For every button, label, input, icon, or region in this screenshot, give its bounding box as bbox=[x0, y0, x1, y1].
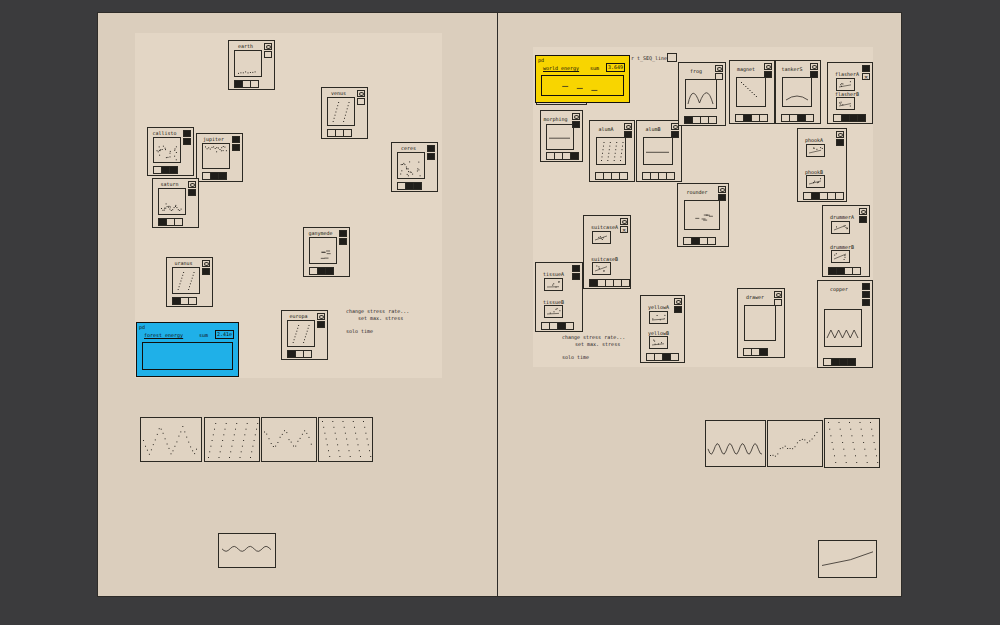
sum-label: sum bbox=[590, 65, 599, 71]
toggle-button[interactable] bbox=[572, 265, 580, 272]
energy-graph bbox=[142, 342, 233, 370]
radio-cell[interactable] bbox=[303, 350, 312, 358]
toggle-button[interactable] bbox=[427, 145, 435, 152]
radio-row bbox=[234, 80, 258, 88]
radio-cell[interactable] bbox=[847, 358, 856, 366]
sum-number-box[interactable]: 2.41e bbox=[215, 330, 234, 339]
graph-canvas bbox=[643, 137, 673, 165]
radio-cell[interactable] bbox=[565, 322, 574, 330]
radio-cell[interactable] bbox=[218, 172, 227, 180]
toggle-button[interactable]: ✕ bbox=[862, 73, 870, 80]
graph-canvas bbox=[782, 77, 812, 107]
radio-row bbox=[309, 267, 333, 275]
graph-canvas bbox=[684, 200, 720, 230]
toggle-button[interactable] bbox=[202, 268, 210, 275]
radio-row bbox=[397, 182, 421, 190]
seq-line-number-box[interactable] bbox=[667, 53, 677, 62]
bang-icon bbox=[673, 125, 678, 129]
module-drummer[interactable]: drummerAdrummerB bbox=[822, 205, 870, 277]
module-label: morphing bbox=[541, 116, 570, 122]
module-label: callisto bbox=[148, 130, 181, 136]
module-label: venus bbox=[322, 90, 355, 96]
module-callisto[interactable]: callisto bbox=[147, 127, 194, 176]
radio-row bbox=[541, 322, 573, 330]
bang-icon bbox=[720, 188, 725, 192]
graph-canvas bbox=[744, 305, 776, 341]
radio-row bbox=[684, 116, 716, 124]
radio-cell[interactable] bbox=[708, 116, 717, 124]
toggle-button[interactable] bbox=[764, 71, 772, 78]
toggle-button[interactable] bbox=[188, 189, 196, 196]
bang-icon bbox=[838, 133, 843, 137]
module-phook[interactable]: phookAphookB bbox=[797, 128, 847, 202]
module-morphing[interactable]: morphing bbox=[540, 110, 583, 162]
module-copper[interactable]: copper bbox=[817, 280, 873, 368]
sum-label: sum bbox=[199, 332, 208, 338]
graph-canvas bbox=[824, 309, 862, 347]
radio-cell[interactable] bbox=[666, 172, 675, 180]
graph-canvas bbox=[546, 124, 574, 150]
bang-icon bbox=[812, 65, 817, 69]
module-label: copper bbox=[818, 286, 860, 292]
radio-cell[interactable] bbox=[707, 237, 716, 245]
radio-cell[interactable] bbox=[621, 279, 630, 287]
module-ganymede[interactable]: ganymede bbox=[303, 227, 350, 277]
pd-tag: pd bbox=[139, 324, 145, 330]
module-label: saturn bbox=[153, 181, 186, 187]
toggle-button[interactable] bbox=[339, 238, 347, 245]
array-name-label: world_energy bbox=[543, 65, 579, 71]
module-drawer[interactable]: drawer bbox=[737, 288, 785, 358]
radio-row bbox=[743, 348, 767, 356]
energy-graph bbox=[541, 75, 624, 96]
toggle-button[interactable] bbox=[572, 273, 580, 280]
graph-canvas-b bbox=[544, 305, 563, 318]
bang-icon bbox=[190, 183, 195, 187]
toggle-button[interactable] bbox=[183, 138, 191, 145]
toggle-x-icon: ✕ bbox=[863, 74, 869, 79]
graph-canvas-b bbox=[649, 336, 668, 349]
array-display-arr-r4 bbox=[818, 540, 877, 578]
radio-row bbox=[781, 114, 813, 122]
toggle-button[interactable] bbox=[624, 131, 632, 138]
radio-row bbox=[546, 152, 578, 160]
graph-canvas-a bbox=[836, 78, 855, 91]
toggle-button[interactable] bbox=[317, 321, 325, 328]
graph-canvas-a bbox=[831, 221, 850, 234]
comment-set-max-right: set max. stress bbox=[575, 341, 620, 348]
array-display-arr-r3 bbox=[824, 418, 880, 468]
module-label: earth bbox=[229, 43, 262, 49]
toggle-button[interactable] bbox=[264, 51, 272, 58]
bang-icon bbox=[676, 300, 681, 304]
array-display-arr-r1 bbox=[705, 420, 766, 467]
graph-canvas-a bbox=[592, 231, 611, 244]
array-display-arr-r2 bbox=[767, 420, 823, 467]
energy-canvas-world[interactable]: pdworld_energysum3.649 bbox=[535, 55, 630, 103]
toggle-button[interactable] bbox=[339, 230, 347, 237]
graph-canvas bbox=[158, 188, 186, 215]
bang-icon bbox=[574, 115, 579, 119]
comment-solo-time-left: solo time bbox=[346, 328, 373, 335]
module-tankerS[interactable]: tankerS bbox=[775, 60, 821, 124]
module-rounder[interactable]: rounder bbox=[677, 183, 729, 247]
toggle-button[interactable] bbox=[427, 153, 435, 160]
module-sublabel-a: tissueA bbox=[543, 271, 564, 277]
bang-button[interactable] bbox=[264, 43, 272, 50]
module-label: alumB bbox=[637, 126, 669, 132]
module-ceres[interactable]: ceres bbox=[391, 142, 438, 192]
array-name-label: forest_energy bbox=[144, 332, 183, 338]
bang-button[interactable] bbox=[810, 63, 818, 70]
module-label: tankerS bbox=[776, 66, 808, 72]
radio-cell[interactable] bbox=[857, 114, 866, 122]
radio-row bbox=[642, 172, 674, 180]
module-label: magnet bbox=[730, 66, 762, 72]
bang-button[interactable] bbox=[357, 90, 365, 97]
module-jupiter[interactable]: jupiter bbox=[196, 133, 243, 182]
module-sublabel-a: phookA bbox=[805, 137, 823, 143]
graph-canvas-b bbox=[831, 250, 850, 263]
bang-icon bbox=[266, 45, 271, 49]
radio-row bbox=[823, 358, 855, 366]
module-sublabel-a: drummerA bbox=[830, 214, 854, 220]
bang-button[interactable] bbox=[715, 65, 723, 72]
graph-canvas bbox=[596, 137, 626, 165]
module-flasher[interactable]: flasherAflasherB✕ bbox=[827, 62, 873, 124]
module-saturn[interactable]: saturn bbox=[152, 178, 199, 228]
pd-tag: pd bbox=[538, 57, 544, 63]
module-label: ceres bbox=[392, 145, 425, 151]
radio-cell[interactable] bbox=[759, 114, 768, 122]
module-label: rounder bbox=[678, 189, 716, 195]
module-alumA[interactable]: alumA bbox=[589, 120, 635, 182]
array-display-arr-l3 bbox=[261, 417, 317, 462]
toggle-button[interactable] bbox=[674, 306, 682, 313]
radio-row bbox=[646, 353, 678, 361]
radio-row bbox=[803, 192, 843, 200]
graph-canvas bbox=[202, 143, 230, 169]
graph-canvas bbox=[685, 79, 717, 109]
graph-canvas bbox=[309, 237, 337, 264]
graph-canvas bbox=[234, 50, 262, 77]
toggle-button[interactable] bbox=[357, 98, 365, 105]
module-tissue[interactable]: tissueAtissueB bbox=[535, 262, 583, 332]
bang-icon bbox=[204, 262, 209, 266]
radio-row bbox=[153, 166, 177, 174]
bang-button[interactable] bbox=[718, 186, 726, 193]
toggle-button[interactable] bbox=[232, 136, 240, 143]
radio-row bbox=[202, 172, 226, 180]
toggle-button[interactable] bbox=[572, 121, 580, 128]
module-alumB[interactable]: alumB bbox=[636, 120, 682, 182]
module-label: frog bbox=[679, 68, 713, 74]
module-label: ganymede bbox=[304, 230, 337, 236]
module-europa[interactable]: europa bbox=[281, 310, 328, 360]
bang-icon bbox=[626, 125, 631, 129]
array-display-arr-l5 bbox=[218, 533, 276, 568]
module-label: europa bbox=[282, 313, 315, 319]
module-sublabel-a: yellowA bbox=[648, 304, 669, 310]
bang-icon bbox=[776, 293, 781, 297]
bang-button[interactable] bbox=[202, 260, 210, 267]
graph-canvas bbox=[287, 320, 315, 347]
radio-row bbox=[327, 129, 351, 137]
graph-canvas-a bbox=[544, 278, 563, 291]
graph-canvas-a bbox=[649, 311, 668, 324]
radio-row bbox=[828, 267, 860, 275]
module-venus[interactable]: venus bbox=[321, 87, 368, 139]
radio-row bbox=[589, 279, 629, 287]
module-uranus[interactable]: uranus bbox=[166, 257, 213, 307]
radio-row bbox=[833, 114, 865, 122]
radio-cell[interactable] bbox=[413, 182, 422, 190]
radio-row bbox=[595, 172, 627, 180]
array-display-arr-l2 bbox=[204, 417, 260, 462]
graph-canvas-a bbox=[806, 144, 825, 157]
radio-row bbox=[172, 297, 196, 305]
object-receive-seq-line[interactable]: r t_SEQ_line bbox=[631, 55, 667, 62]
bang-button[interactable] bbox=[624, 123, 632, 130]
bang-button[interactable] bbox=[859, 208, 867, 215]
module-label: uranus bbox=[167, 260, 200, 266]
radio-cell[interactable] bbox=[570, 152, 579, 160]
bang-button[interactable] bbox=[317, 313, 325, 320]
toggle-button[interactable] bbox=[859, 216, 867, 223]
toggle-x-icon: ✕ bbox=[621, 227, 627, 232]
bang-button[interactable] bbox=[674, 298, 682, 305]
toggle-button[interactable] bbox=[862, 299, 870, 306]
toggle-button[interactable] bbox=[836, 139, 844, 146]
graph-canvas bbox=[736, 77, 766, 107]
radio-cell[interactable] bbox=[343, 129, 352, 137]
graph-canvas-b bbox=[806, 175, 825, 188]
bang-button[interactable] bbox=[572, 113, 580, 120]
radio-cell[interactable] bbox=[250, 80, 259, 88]
comment-change-stress-right: change stress rate... bbox=[562, 334, 625, 341]
radio-cell[interactable] bbox=[619, 172, 628, 180]
graph-canvas bbox=[172, 267, 200, 294]
toggle-button[interactable] bbox=[810, 71, 818, 78]
energy-canvas-forest[interactable]: pdforest_energysum2.41e bbox=[136, 322, 239, 377]
comment-change-stress-left: change stress rate... bbox=[346, 308, 409, 315]
graph-canvas-b bbox=[592, 262, 611, 275]
pd-workspace: change stress rate... set max. stress so… bbox=[0, 0, 1000, 625]
bang-icon bbox=[319, 315, 324, 319]
module-label: alumA bbox=[590, 126, 622, 132]
module-earth[interactable]: earth bbox=[228, 40, 275, 90]
radio-row bbox=[158, 218, 182, 226]
module-sublabel-a: flasherA bbox=[835, 71, 859, 77]
toggle-button[interactable] bbox=[715, 73, 723, 80]
radio-row bbox=[287, 350, 311, 358]
graph-canvas-b bbox=[836, 97, 855, 110]
radio-cell[interactable] bbox=[670, 353, 679, 361]
radio-cell[interactable] bbox=[852, 267, 861, 275]
radio-row bbox=[735, 114, 767, 122]
bang-button[interactable] bbox=[620, 218, 628, 225]
bang-icon bbox=[766, 65, 771, 69]
module-label: jupiter bbox=[197, 136, 230, 142]
toggle-button[interactable] bbox=[862, 65, 870, 72]
radio-cell[interactable] bbox=[805, 114, 814, 122]
sum-number-box[interactable]: 3.649 bbox=[606, 63, 625, 72]
radio-cell[interactable] bbox=[174, 218, 183, 226]
graph-canvas bbox=[397, 152, 425, 179]
module-yellow[interactable]: yellowAyellowB bbox=[640, 295, 685, 363]
bang-icon bbox=[359, 92, 364, 96]
radio-cell[interactable] bbox=[188, 297, 197, 305]
comment-set-max-left: set max. stress bbox=[358, 315, 403, 322]
comment-solo-time-right: solo time bbox=[562, 354, 589, 361]
toggle-button[interactable] bbox=[774, 299, 782, 306]
radio-cell[interactable] bbox=[325, 267, 334, 275]
toggle-button[interactable] bbox=[671, 131, 679, 138]
bang-icon bbox=[622, 220, 627, 224]
toggle-button[interactable]: ✕ bbox=[620, 226, 628, 233]
module-sublabel-a: suitcaseA bbox=[591, 224, 618, 230]
bang-button[interactable] bbox=[774, 291, 782, 298]
module-magnet[interactable]: magnet bbox=[729, 60, 775, 124]
module-suitcase[interactable]: suitcaseAsuitcaseB✕ bbox=[583, 215, 631, 289]
bang-button[interactable] bbox=[836, 131, 844, 138]
toggle-button[interactable] bbox=[718, 194, 726, 201]
radio-cell[interactable] bbox=[835, 192, 844, 200]
graph-canvas bbox=[327, 97, 355, 126]
array-display-arr-l4 bbox=[318, 417, 373, 462]
bang-button[interactable] bbox=[188, 181, 196, 188]
array-display-arr-l1 bbox=[140, 417, 202, 462]
toggle-button[interactable] bbox=[862, 291, 870, 298]
module-label: drawer bbox=[738, 294, 772, 300]
radio-cell[interactable] bbox=[169, 166, 178, 174]
toggle-button[interactable] bbox=[862, 283, 870, 290]
bang-icon bbox=[861, 210, 866, 214]
toggle-button[interactable] bbox=[232, 144, 240, 151]
graph-canvas bbox=[153, 137, 181, 163]
radio-cell[interactable] bbox=[759, 348, 768, 356]
toggle-button[interactable] bbox=[183, 130, 191, 137]
module-frog[interactable]: frog bbox=[678, 62, 726, 126]
radio-row bbox=[683, 237, 715, 245]
bang-icon bbox=[717, 67, 722, 71]
bang-button[interactable] bbox=[764, 63, 772, 70]
